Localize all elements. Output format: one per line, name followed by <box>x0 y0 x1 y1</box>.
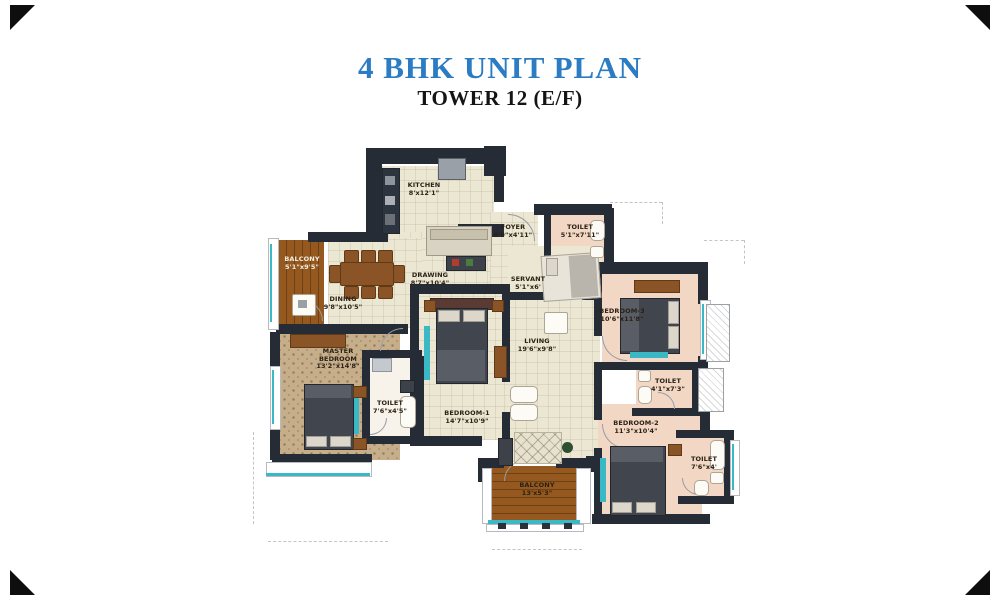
basin-icon <box>638 370 651 382</box>
dining-chair <box>378 286 393 299</box>
rail-post <box>520 523 528 529</box>
wall <box>594 362 602 420</box>
accent-chair <box>498 438 513 466</box>
room-label-foyer: FOYER8'9"x4'11" <box>494 224 533 239</box>
decor-icon <box>452 259 459 266</box>
hob-icon <box>385 196 395 205</box>
sink-icon <box>385 176 395 185</box>
projection-line <box>492 549 582 550</box>
utility-shaft <box>706 304 730 362</box>
wall <box>604 208 614 268</box>
room-dims: 8'x12'1" <box>408 190 441 198</box>
basin-icon <box>400 380 415 393</box>
bench <box>424 326 430 380</box>
wall <box>362 356 370 440</box>
wall <box>308 232 388 242</box>
planter-pot <box>298 300 307 308</box>
rail-post <box>542 523 550 529</box>
bedside-table <box>492 300 504 312</box>
bedside-table <box>424 300 436 312</box>
wardrobe <box>290 334 346 348</box>
window-glass <box>702 304 704 354</box>
wall <box>272 454 372 462</box>
wc-icon <box>694 480 709 496</box>
projection-line <box>610 202 662 203</box>
basin-icon <box>710 472 724 484</box>
bed-blanket <box>611 447 663 462</box>
projection-line <box>253 432 254 524</box>
dining-chair <box>344 250 359 263</box>
decor-icon <box>466 259 473 266</box>
corner-accent-icon <box>965 5 990 30</box>
page-title: 4 BHK UNIT PLAN <box>0 50 1000 86</box>
room-dims: 10'6"x11'8" <box>599 316 644 324</box>
projection-line <box>704 240 744 241</box>
dining-chair <box>393 265 405 283</box>
basin-icon <box>590 246 604 258</box>
bed-blanket <box>305 385 351 398</box>
wall <box>362 436 424 444</box>
pillow <box>438 310 460 322</box>
utility-shaft <box>698 368 724 412</box>
wall <box>366 148 382 238</box>
room-dims: 5'1"x9'5" <box>284 264 319 272</box>
room-dims: 14'7"x10'9" <box>444 418 489 426</box>
room-dims: 19'6"x9'8" <box>518 346 557 354</box>
room-dims: 5'1"x7'11" <box>561 232 600 240</box>
corner-accent-icon <box>965 570 990 595</box>
wall <box>592 262 708 274</box>
room-dims: 11'3"x10'4" <box>613 428 658 436</box>
room-label-master-bedroom: MASTER BEDROOM13'2"x14'8" <box>315 348 361 371</box>
corner-accent-icon <box>10 570 35 595</box>
pillow <box>668 301 679 324</box>
balcony-pillar <box>576 468 591 524</box>
pillow <box>463 310 485 322</box>
room-dims: 8'7"x10'4" <box>411 280 450 288</box>
room-dims: 8'9"x4'11" <box>494 232 533 240</box>
bench <box>630 352 668 358</box>
bedside-table <box>353 386 367 398</box>
balcony-pillar <box>482 468 492 524</box>
pillow <box>330 436 351 447</box>
room-dims: 13'2"x14'8" <box>315 363 361 371</box>
console <box>494 346 507 378</box>
servant-blanket <box>569 254 599 298</box>
dining-chair <box>361 250 376 263</box>
center-table <box>544 312 568 334</box>
plant-icon <box>562 442 573 453</box>
room-dims: 7'6"x4' <box>691 464 717 472</box>
room-name: MASTER BEDROOM <box>315 348 361 363</box>
dining-chair <box>378 250 393 263</box>
room-label-dining: DINING9'8"x10'5" <box>324 296 363 311</box>
room-dims: 7'6"x4'5" <box>373 408 407 416</box>
armchair <box>510 386 538 403</box>
rail-post <box>498 523 506 529</box>
wall <box>600 362 698 370</box>
dining-table <box>340 262 394 286</box>
room-dims: 4'1"x7'3" <box>651 386 685 394</box>
pillow <box>546 258 558 276</box>
room-label-toilet-entry: TOILET5'1"x7'11" <box>561 224 600 239</box>
sofa-cushions <box>430 229 488 240</box>
wall <box>362 350 422 358</box>
room-label-bedroom1: BEDROOM-114'7"x10'9" <box>444 410 489 425</box>
wall <box>416 356 424 444</box>
bedside-table <box>668 444 682 456</box>
pillow <box>612 502 632 513</box>
room-label-toilet-master: TOILET7'6"x4'5" <box>373 400 407 415</box>
room-dims: 9'8"x10'5" <box>324 304 363 312</box>
projection-line <box>662 202 663 224</box>
room-label-balcony-left: BALCONY5'1"x9'5" <box>284 256 319 271</box>
room-label-drawing: DRAWING8'7"x10'4" <box>411 272 450 287</box>
room-label-balcony-bottom: BALCONY13'x5'3" <box>519 482 554 497</box>
window-glass <box>732 444 734 490</box>
wall <box>698 266 708 304</box>
pillow <box>636 502 656 513</box>
rug <box>514 432 562 464</box>
wc-icon <box>638 386 652 404</box>
wall <box>270 332 280 368</box>
room-label-toilet-bed3: TOILET4'1"x7'3" <box>651 378 685 393</box>
window-glass <box>272 370 274 424</box>
room-dims: 13'x5'3" <box>519 490 554 498</box>
projection-line <box>268 541 388 542</box>
brochure-page: 4 BHK UNIT PLAN TOWER 12 (E/F) <box>0 0 1000 600</box>
bedside-table <box>353 438 367 450</box>
rail-post <box>564 523 572 529</box>
fridge-icon <box>385 214 395 225</box>
room-label-kitchen: KITCHEN8'x12'1" <box>408 182 441 197</box>
bench <box>600 458 606 502</box>
page-subtitle: TOWER 12 (E/F) <box>0 86 1000 111</box>
wall <box>494 164 504 202</box>
room-label-bedroom3: BEDROOM-310'6"x11'8" <box>599 308 644 323</box>
room-label-servant: SERVANT5'1"x6' <box>511 276 545 291</box>
dresser <box>634 280 680 293</box>
room-dims: 5'1"x6' <box>511 284 545 292</box>
window-glass <box>270 244 272 322</box>
window-glass <box>266 473 370 476</box>
pillow <box>306 436 327 447</box>
dining-chair <box>329 265 341 283</box>
room-label-toilet-bed2: TOILET7'6"x4' <box>691 456 717 471</box>
corner-accent-icon <box>10 5 35 30</box>
shower-icon <box>372 358 392 372</box>
pillow <box>668 326 679 349</box>
wall <box>678 496 734 504</box>
room-label-bedroom2: BEDROOM-211'3"x10'4" <box>613 420 658 435</box>
stove-icon <box>438 158 466 180</box>
projection-line <box>744 240 745 264</box>
bed-runner <box>354 398 359 434</box>
wall <box>556 458 596 468</box>
armchair <box>510 404 538 421</box>
room-label-living: LIVING19'6"x9'8" <box>518 338 557 353</box>
bed-blanket <box>437 350 485 381</box>
dining-chair <box>361 286 376 299</box>
